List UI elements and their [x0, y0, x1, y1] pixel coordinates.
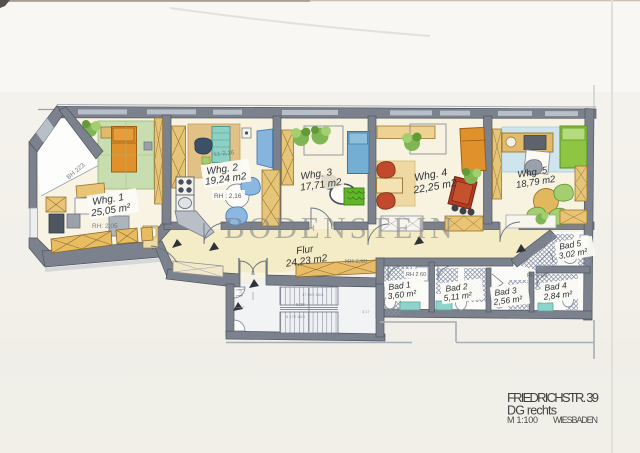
svg-text:RH 2 60: RH 2 60 [406, 272, 426, 278]
svg-text:BODENSTEIN: BODENSTEIN [224, 210, 456, 245]
svg-text:RH 2,60: RH 2,60 [345, 259, 368, 265]
svg-text:RH : 2,16: RH : 2,16 [214, 193, 242, 200]
svg-text:RH: 2,05: RH: 2,05 [92, 223, 118, 230]
svg-text:5,28: 5,28 [296, 302, 305, 307]
svg-text:WIESBADEN: WIESBADEN [553, 415, 598, 425]
svg-text:3,17: 3,17 [362, 309, 371, 314]
svg-text:2,51: 2,51 [238, 288, 243, 297]
svg-text:RH 2 60: RH 2 60 [527, 273, 547, 279]
svg-text:8 175 16/3: 8 175 16/3 [286, 314, 306, 319]
svg-text:M 1:100: M 1:100 [507, 415, 538, 425]
svg-text:17 StG 16/3: 17 StG 16/3 [302, 292, 324, 297]
